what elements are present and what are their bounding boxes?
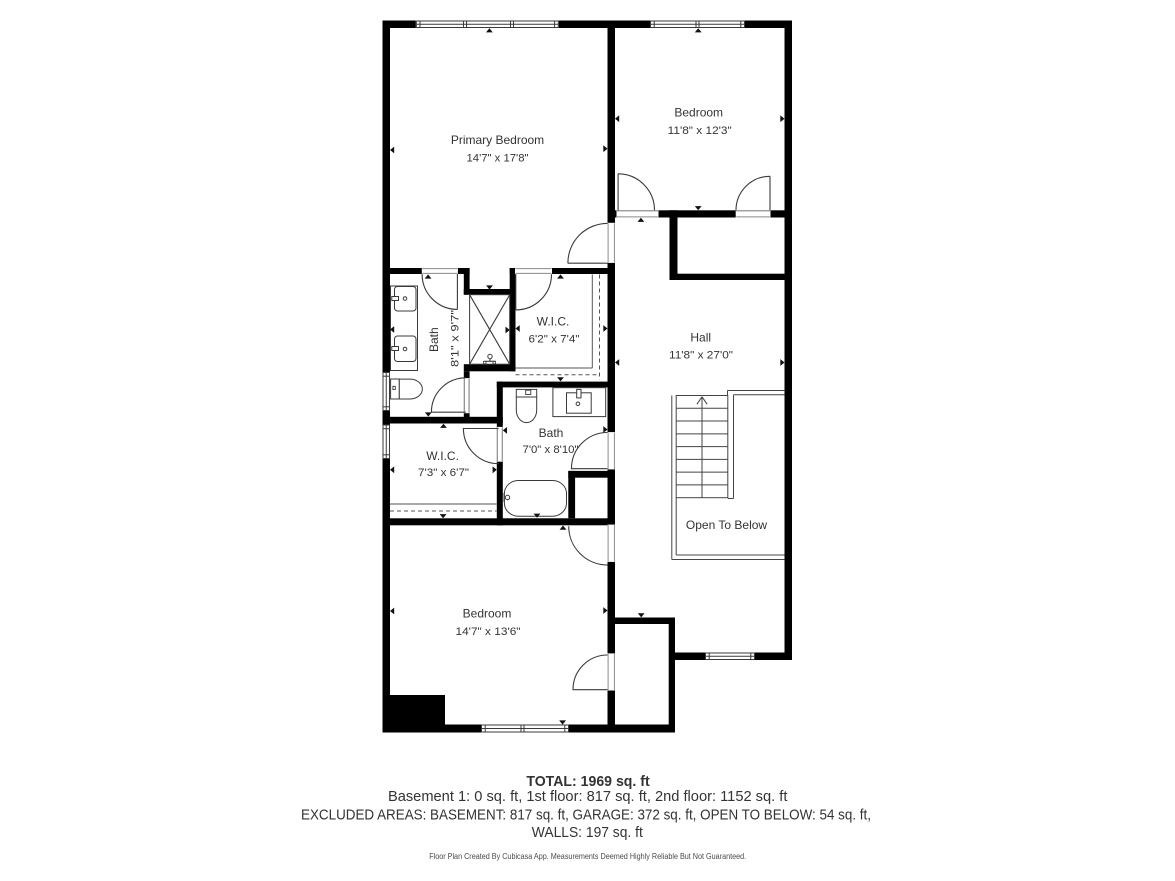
svg-text:Hall: Hall [690,330,711,344]
svg-text:6'2" x 7'4": 6'2" x 7'4" [529,334,580,346]
svg-text:Bath: Bath [539,426,564,440]
svg-text:Bath: Bath [427,327,441,352]
svg-text:14'7" x 17'8": 14'7" x 17'8" [467,152,529,164]
svg-text:Bedroom: Bedroom [463,606,512,620]
svg-text:Open To Below: Open To Below [686,518,767,532]
svg-text:Bedroom: Bedroom [674,105,723,119]
svg-text:14'7" x 13'6": 14'7" x 13'6" [456,626,521,638]
svg-text:Basement 1: 0 sq. ft, 1st floo: Basement 1: 0 sq. ft, 1st floor: 817 sq.… [388,788,788,805]
svg-text:11'8" x 27'0": 11'8" x 27'0" [669,349,733,361]
svg-text:11'8" x 12'3": 11'8" x 12'3" [668,125,732,137]
svg-text:W.I.C.: W.I.C. [537,315,570,329]
svg-text:Floor Plan Created By Cubicasa: Floor Plan Created By Cubicasa App. Meas… [429,852,746,861]
svg-text:7'0" x 8'10": 7'0" x 8'10" [523,444,579,456]
svg-text:WALLS: 197 sq. ft: WALLS: 197 sq. ft [532,824,644,841]
svg-text:7'3" x 6'7": 7'3" x 6'7" [418,467,469,479]
svg-text:Primary Bedroom: Primary Bedroom [451,133,544,147]
svg-text:W.I.C.: W.I.C. [426,449,459,463]
svg-text:EXCLUDED AREAS: BASEMENT: 817: EXCLUDED AREAS: BASEMENT: 817 sq. ft, GA… [301,807,871,824]
svg-text:8'1" x 9'7": 8'1" x 9'7" [450,310,462,367]
